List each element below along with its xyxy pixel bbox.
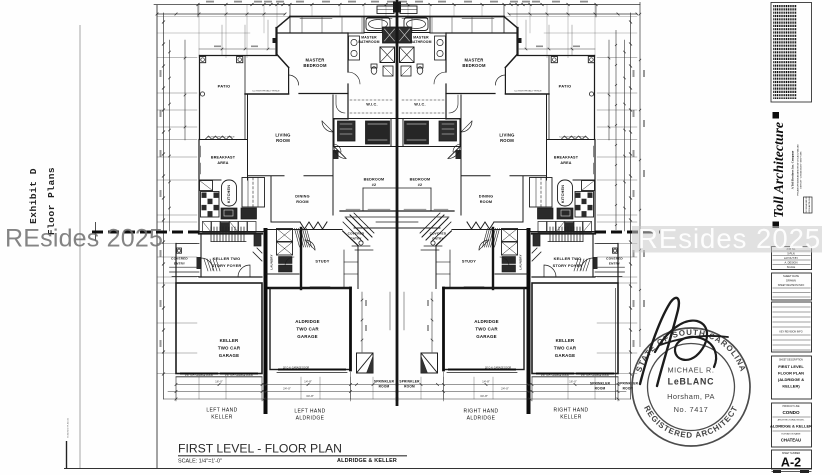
svg-text:AREA: AREA: [217, 161, 228, 165]
svg-text:TWO CAR: TWO CAR: [554, 346, 577, 351]
svg-text:ALDRIDGE: ALDRIDGE: [467, 416, 496, 422]
svg-text:24'-0": 24'-0": [501, 386, 509, 390]
svg-text:9'x7' O.H. GARAGE DOOR: 9'x7' O.H. GARAGE DOOR: [581, 374, 609, 377]
svg-text:BATHROOM: BATHROOM: [410, 40, 431, 44]
svg-text:MASTER: MASTER: [465, 58, 484, 63]
svg-text:14'-8": 14'-8": [482, 379, 490, 383]
svg-text:MICHAEL R.: MICHAEL R.: [668, 366, 715, 375]
svg-text:ROOM: ROOM: [595, 387, 606, 391]
svg-text:18' O.H. GARAGE DOOR: 18' O.H. GARAGE DOOR: [485, 367, 512, 370]
svg-text:9'x7' O.H. GARAGE DOOR: 9'x7' O.H. GARAGE DOOR: [185, 374, 213, 377]
svg-text:LEFT HAND: LEFT HAND: [294, 409, 325, 415]
svg-text:BEDROOM: BEDROOM: [462, 63, 486, 68]
svg-text:LAYOUT BY: LAYOUT BY: [784, 256, 799, 260]
svg-text:COVERED: COVERED: [171, 257, 188, 261]
svg-text:KELLER: KELLER: [220, 338, 239, 343]
svg-text:ENTRY: ENTRY: [609, 262, 621, 266]
svg-text:GARAGE: GARAGE: [219, 353, 239, 358]
svg-text:6-0 HIGH PRIVACY FENCE: 6-0 HIGH PRIVACY FENCE: [207, 135, 235, 138]
svg-text:6-0 HIGH PRIVACY FENCE: 6-0 HIGH PRIVACY FENCE: [514, 90, 542, 93]
svg-text:DINING: DINING: [479, 195, 494, 199]
svg-text:GARAGE: GARAGE: [297, 334, 317, 339]
svg-text:FLOOR PLAN: FLOOR PLAN: [778, 371, 804, 376]
svg-text:BEDROOM: BEDROOM: [364, 178, 385, 182]
svg-text:SHEET REVISION INFO: SHEET REVISION INFO: [778, 284, 805, 287]
svg-text:SHEET DESCRIPTION: SHEET DESCRIPTION: [779, 360, 803, 362]
svg-text:RIGHT HAND: RIGHT HAND: [463, 409, 498, 415]
svg-text:ROOM: ROOM: [500, 138, 514, 143]
svg-text:REsides 2025: REsides 2025: [638, 223, 821, 254]
svg-text:BREAKFAST: BREAKFAST: [211, 156, 236, 160]
svg-text:LAUNDRY: LAUNDRY: [270, 254, 274, 269]
svg-text:GARAGE: GARAGE: [555, 353, 575, 358]
svg-text:LeBLANC: LeBLANC: [668, 377, 715, 387]
svg-text:SPRINKLER: SPRINKLER: [618, 382, 639, 386]
svg-text:COVERED: COVERED: [606, 257, 623, 261]
svg-text:KITCHEN: KITCHEN: [561, 185, 565, 203]
svg-text:RIGHT HAND: RIGHT HAND: [553, 408, 588, 414]
svg-text:W.I.C.: W.I.C.: [366, 103, 378, 107]
svg-text:SPRINKLER: SPRINKLER: [590, 382, 611, 386]
svg-text:LEFT HAND: LEFT HAND: [206, 408, 237, 414]
svg-text:MASTER: MASTER: [361, 36, 377, 40]
svg-text:ENTRY: ENTRY: [174, 262, 186, 266]
svg-text:LAUNDRY: LAUNDRY: [519, 254, 523, 269]
svg-text:STORY FOYER: STORY FOYER: [212, 263, 242, 268]
svg-text:KELLER: KELLER: [560, 415, 582, 421]
svg-text:STUDY: STUDY: [315, 259, 329, 264]
svg-text:AREA: AREA: [560, 161, 571, 165]
svg-text:PATIO: PATIO: [559, 84, 572, 89]
svg-text:TWO CAR: TWO CAR: [475, 327, 498, 332]
svg-text:ROOM: ROOM: [480, 200, 493, 204]
svg-text:ALDRIDGE: ALDRIDGE: [474, 319, 499, 324]
svg-text:COVERED: COVERED: [430, 232, 447, 236]
svg-text:16'-0": 16'-0": [215, 379, 223, 383]
svg-text:REsides 2025: REsides 2025: [5, 225, 163, 253]
svg-text:BEDROOM: BEDROOM: [410, 178, 431, 182]
svg-text:ENTRY: ENTRY: [432, 237, 444, 241]
svg-text:Exhibit D: Exhibit D: [28, 168, 39, 224]
svg-text:9'x7' O.H. GARAGE DOOR: 9'x7' O.H. GARAGE DOOR: [225, 374, 253, 377]
svg-text:34'-8": 34'-8": [480, 394, 488, 398]
svg-text:LIVING: LIVING: [275, 133, 290, 138]
svg-text:ELEVATION NAME: ELEVATION NAME: [782, 433, 801, 436]
svg-text:LIVING: LIVING: [499, 133, 514, 138]
svg-text:No. 7417: No. 7417: [674, 405, 709, 414]
svg-text:TWO CAR: TWO CAR: [296, 327, 319, 332]
svg-text:Horsham, PA: Horsham, PA: [667, 392, 715, 401]
svg-text:CHATEAU: CHATEAU: [781, 438, 801, 443]
svg-text:GARAGE: GARAGE: [476, 334, 496, 339]
svg-text:FIRST LEVEL - FLOOR PLAN: FIRST LEVEL - FLOOR PLAN: [178, 442, 342, 456]
svg-text:PHILADELPHIA•ATLANTA•BOSTON•CH: PHILADELPHIA•ATLANTA•BOSTON•CHICAGO•DALL…: [797, 144, 800, 196]
svg-text:14'-8": 14'-8": [304, 379, 312, 383]
svg-text:#2: #2: [372, 183, 377, 187]
svg-text:KEY REVISION INFO: KEY REVISION INFO: [779, 331, 802, 334]
svg-text:PATIO: PATIO: [218, 84, 231, 89]
svg-text:PRODUCT LINE: PRODUCT LINE: [782, 406, 800, 408]
svg-text:ROOM: ROOM: [276, 138, 290, 143]
svg-text:FIRST LEVEL: FIRST LEVEL: [778, 364, 804, 369]
svg-text:MASTER: MASTER: [306, 58, 325, 63]
svg-text:DRAWN: DRAWN: [786, 279, 796, 283]
svg-text:ROOM: ROOM: [296, 200, 309, 204]
svg-text:TWO CAR: TWO CAR: [218, 346, 241, 351]
svg-text:BEDROOM: BEDROOM: [303, 63, 327, 68]
svg-text:DETROIT • LOS ANGELES • NEW YO: DETROIT • LOS ANGELES • NEW YORK: [800, 151, 803, 189]
svg-text:ENTRY: ENTRY: [350, 237, 362, 241]
svg-text:9'x7' O.H. GARAGE DOOR: 9'x7' O.H. GARAGE DOOR: [541, 374, 569, 377]
svg-text:ARCHITECTURAL MODEL: ARCHITECTURAL MODEL: [778, 419, 805, 422]
svg-text:KELLER: KELLER: [556, 338, 575, 343]
svg-text:KITCHEN: KITCHEN: [227, 185, 231, 203]
svg-text:STUDY: STUDY: [462, 259, 476, 264]
svg-text:18' O.H. GARAGE DOOR: 18' O.H. GARAGE DOOR: [283, 367, 310, 370]
svg-text:ROOM: ROOM: [404, 385, 415, 389]
svg-text:A. DESIGN: A. DESIGN: [784, 261, 797, 265]
svg-text:ROOM: ROOM: [379, 385, 390, 389]
svg-text:250 GIBRALTAR RD: 250 GIBRALTAR RD: [805, 196, 808, 213]
svg-text:DINING: DINING: [295, 195, 310, 199]
svg-text:ALDRIDGE & KELLER: ALDRIDGE & KELLER: [337, 458, 397, 464]
svg-text:6-0 HIGH PRIVACY FENCE: 6-0 HIGH PRIVACY FENCE: [252, 90, 280, 93]
svg-text:6-0 HIGH PRIVACY FENCE: 6-0 HIGH PRIVACY FENCE: [559, 135, 587, 138]
svg-text:#2: #2: [418, 183, 423, 187]
svg-text:STORY FOYER: STORY FOYER: [553, 263, 583, 268]
svg-text:A-2: A-2: [781, 456, 801, 470]
svg-text:KELLER TWO: KELLER TWO: [554, 256, 582, 261]
svg-text:ALDRIDGE: ALDRIDGE: [296, 416, 325, 422]
svg-text:W.I.C.: W.I.C.: [414, 103, 426, 107]
svg-text:ALDRIDGE & KELLER: ALDRIDGE & KELLER: [770, 424, 812, 429]
svg-text:SCALE: 1/4"=1'-0": SCALE: 1/4"=1'-0": [178, 459, 222, 465]
svg-text:COVERED: COVERED: [348, 232, 365, 236]
svg-text:BATHROOM: BATHROOM: [358, 40, 379, 44]
svg-text:KELLER: KELLER: [211, 415, 233, 421]
svg-text:34'-8": 34'-8": [306, 394, 314, 398]
svg-text:24'-0": 24'-0": [283, 386, 291, 390]
svg-text:SPRINKLER: SPRINKLER: [399, 380, 420, 384]
svg-text:A Toll Brothers Inc. Company: A Toll Brothers Inc. Company: [791, 150, 795, 189]
svg-text:MASTER: MASTER: [413, 36, 429, 40]
svg-text:KELLER): KELLER): [782, 384, 800, 389]
svg-text:SCANNED PLAN A2: SCANNED PLAN A2: [67, 417, 70, 438]
svg-text:SCALE: SCALE: [787, 265, 796, 269]
svg-text:(ALDRIDGE &: (ALDRIDGE &: [778, 377, 804, 382]
svg-text:SPRINKLER: SPRINKLER: [374, 380, 395, 384]
svg-text:Toll Architecture: Toll Architecture: [771, 122, 786, 218]
svg-text:SHEET DATE: SHEET DATE: [783, 274, 799, 278]
svg-text:BREAKFAST: BREAKFAST: [554, 156, 579, 160]
svg-text:CONDO: CONDO: [782, 410, 800, 415]
svg-text:16'-0": 16'-0": [569, 379, 577, 383]
svg-text:ALDRIDGE: ALDRIDGE: [295, 319, 320, 324]
svg-text:KELLER TWO: KELLER TWO: [213, 256, 241, 261]
svg-text:HORSHAM PA 19044: HORSHAM PA 19044: [808, 196, 811, 213]
